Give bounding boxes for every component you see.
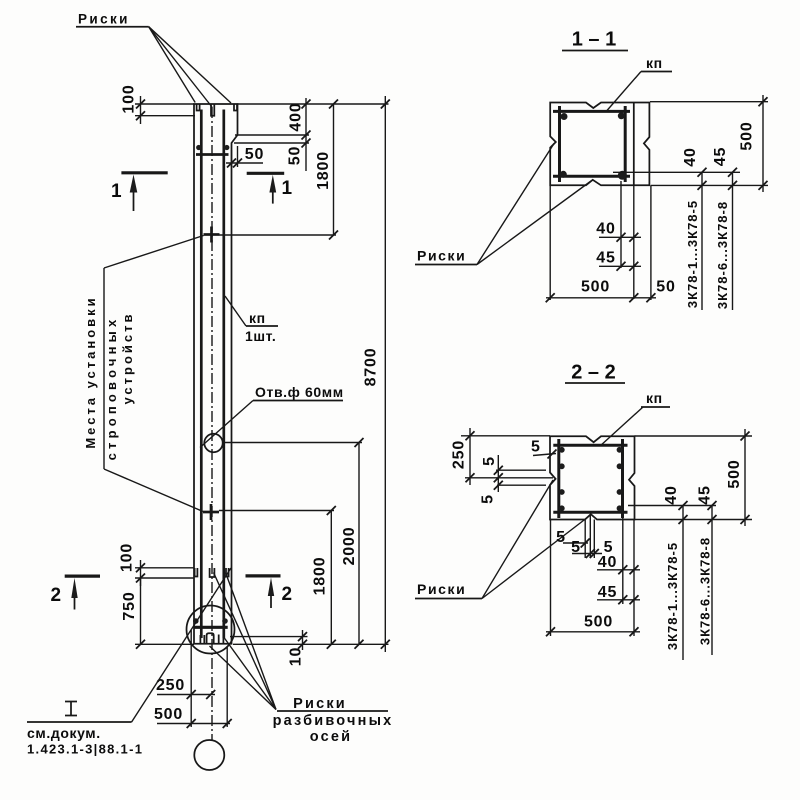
svg-text:45: 45 bbox=[712, 147, 729, 166]
svg-text:разбивочных: разбивочных bbox=[273, 713, 394, 729]
svg-text:3К78-6...3К78-8: 3К78-6...3К78-8 bbox=[715, 201, 730, 309]
svg-text:5: 5 bbox=[531, 439, 541, 456]
svg-text:Риски: Риски bbox=[417, 581, 466, 597]
svg-text:1 – 1: 1 – 1 bbox=[572, 29, 616, 51]
svg-text:500: 500 bbox=[581, 279, 610, 296]
svg-text:750: 750 bbox=[121, 591, 138, 620]
svg-text:3К78-1...3К78-5: 3К78-1...3К78-5 bbox=[665, 542, 680, 650]
svg-text:Риски: Риски bbox=[417, 248, 466, 264]
svg-text:2: 2 bbox=[51, 585, 62, 606]
svg-text:Риски: Риски bbox=[293, 696, 347, 712]
svg-text:строповочных: строповочных bbox=[104, 316, 119, 461]
svg-text:5: 5 bbox=[481, 456, 498, 466]
svg-text:3К78-6...3К78-8: 3К78-6...3К78-8 bbox=[697, 537, 712, 645]
svg-text:45: 45 bbox=[596, 250, 615, 267]
svg-text:40: 40 bbox=[598, 554, 617, 571]
svg-text:100: 100 bbox=[121, 84, 138, 113]
svg-text:устройств: устройств bbox=[120, 312, 135, 405]
svg-text:Места установки: Места установки bbox=[83, 295, 98, 448]
svg-text:2000: 2000 bbox=[341, 527, 358, 566]
svg-text:50: 50 bbox=[656, 279, 675, 296]
svg-text:250: 250 bbox=[451, 440, 468, 469]
svg-text:40: 40 bbox=[682, 147, 699, 166]
svg-text:10: 10 bbox=[288, 647, 305, 666]
svg-text:50: 50 bbox=[245, 146, 264, 163]
svg-text:см.докум.: см.докум. bbox=[27, 725, 101, 741]
svg-text:40: 40 bbox=[663, 485, 680, 504]
svg-text:500: 500 bbox=[726, 459, 743, 488]
svg-text:Риски: Риски bbox=[78, 12, 130, 27]
svg-text:1.423.1-3|88.1-1: 1.423.1-3|88.1-1 bbox=[27, 742, 143, 757]
svg-text:40: 40 bbox=[596, 221, 615, 238]
svg-text:45: 45 bbox=[697, 485, 714, 504]
svg-text:45: 45 bbox=[598, 584, 617, 601]
svg-text:кп: кп bbox=[646, 55, 663, 71]
svg-text:50: 50 bbox=[287, 146, 304, 165]
svg-text:1800: 1800 bbox=[315, 151, 332, 190]
svg-text:кп: кп bbox=[249, 310, 266, 326]
svg-text:8700: 8700 bbox=[363, 348, 380, 387]
svg-text:5: 5 bbox=[556, 529, 566, 546]
svg-text:100: 100 bbox=[119, 543, 136, 572]
svg-text:1800: 1800 bbox=[312, 557, 329, 596]
svg-text:250: 250 bbox=[156, 677, 185, 694]
svg-text:400: 400 bbox=[288, 102, 305, 131]
svg-text:500: 500 bbox=[154, 706, 183, 723]
svg-text:2: 2 bbox=[282, 584, 293, 605]
svg-text:500: 500 bbox=[739, 121, 756, 150]
svg-text:1: 1 bbox=[282, 178, 293, 199]
svg-text:1: 1 bbox=[111, 181, 122, 202]
svg-text:500: 500 bbox=[584, 614, 613, 631]
svg-text:1шт.: 1шт. bbox=[245, 328, 276, 344]
svg-text:5: 5 bbox=[571, 539, 581, 556]
svg-text:5: 5 bbox=[480, 494, 497, 504]
svg-text:кп: кп bbox=[646, 390, 663, 406]
svg-text:3К78-1...3К78-5: 3К78-1...3К78-5 bbox=[685, 200, 700, 308]
svg-text:Отв.ф 60мм: Отв.ф 60мм bbox=[255, 384, 344, 400]
svg-text:осей: осей bbox=[310, 729, 353, 745]
svg-text:2 – 2: 2 – 2 bbox=[571, 362, 615, 384]
